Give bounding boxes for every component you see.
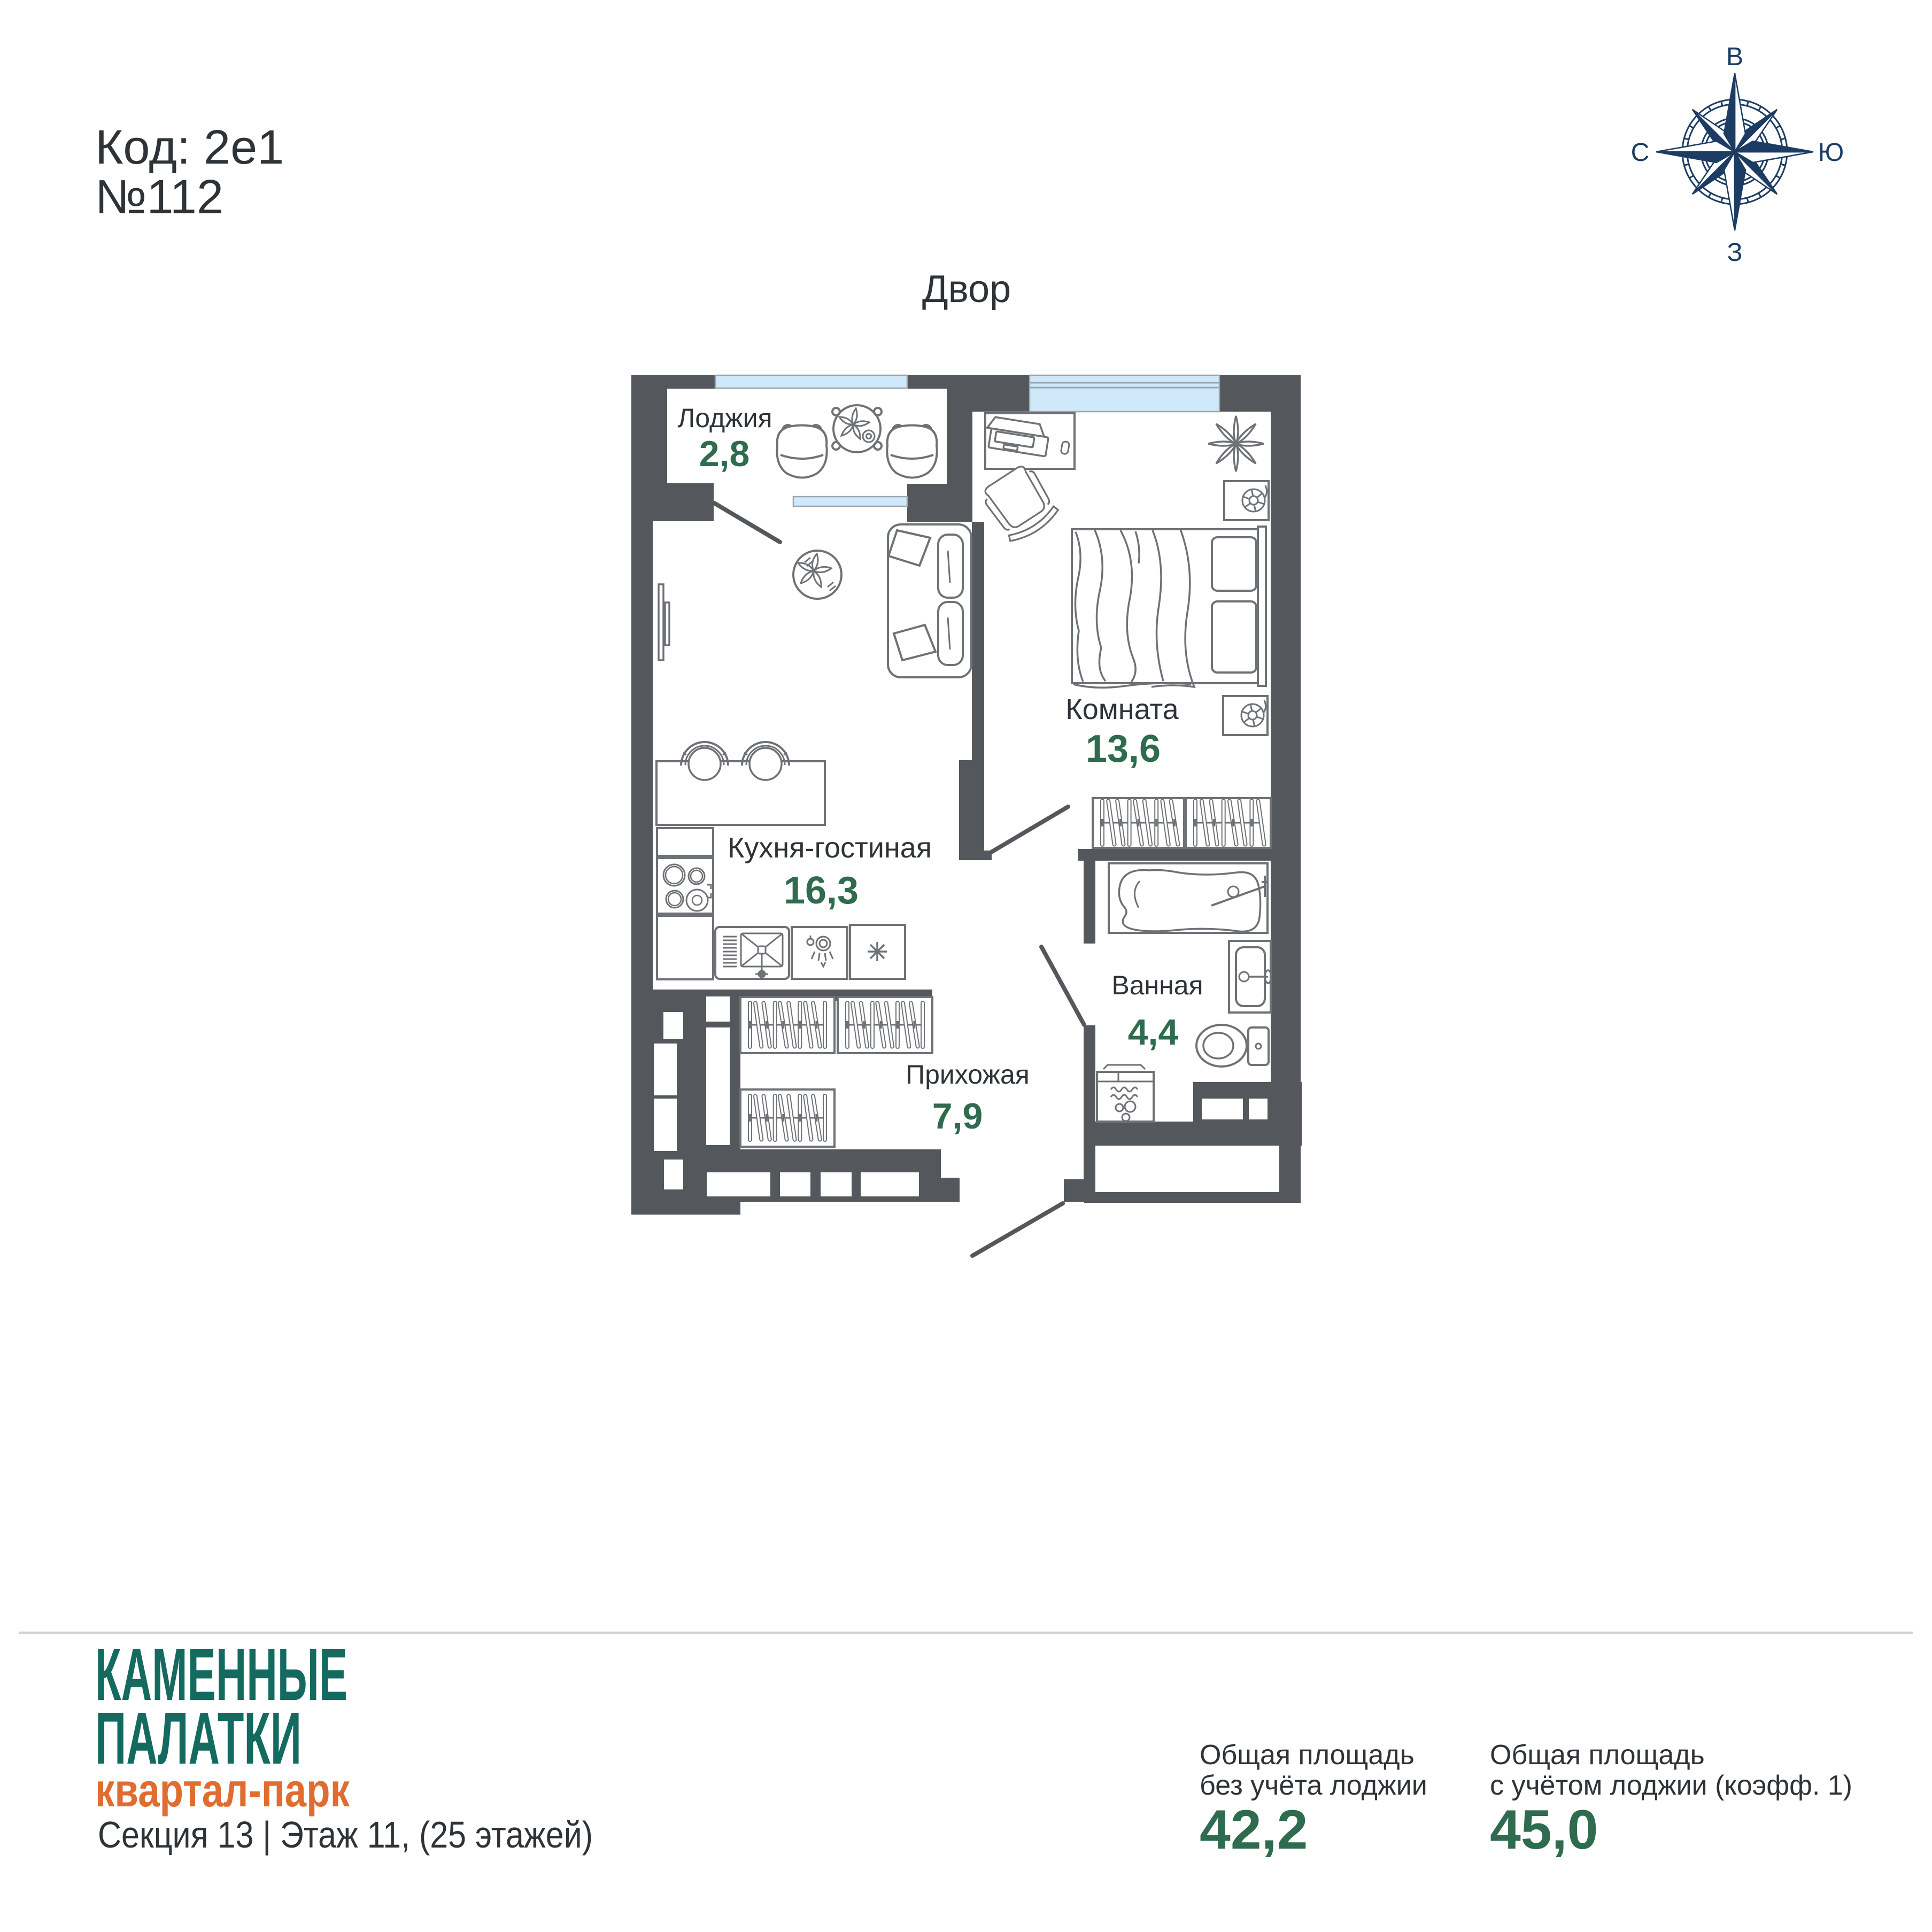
svg-text:Общая площадь: Общая площадь: [1200, 1740, 1415, 1771]
svg-text:З: З: [1727, 238, 1743, 267]
svg-text:Секция 13 | Этаж 11, (25 этаже: Секция 13 | Этаж 11, (25 этажей): [98, 1814, 593, 1856]
svg-text:В: В: [1726, 43, 1743, 71]
svg-text:квартал-парк: квартал-парк: [95, 1764, 350, 1817]
svg-text:45,0: 45,0: [1490, 1799, 1598, 1861]
svg-text:Прихожая: Прихожая: [906, 1060, 1030, 1089]
svg-text:4,4: 4,4: [1128, 1012, 1179, 1053]
svg-text:Ю: Ю: [1818, 138, 1844, 167]
svg-text:Лоджия: Лоджия: [677, 403, 772, 433]
svg-text:42,2: 42,2: [1200, 1799, 1308, 1861]
svg-text:2,8: 2,8: [699, 434, 750, 474]
svg-text:Комната: Комната: [1065, 693, 1179, 725]
svg-text:№112: №112: [95, 171, 223, 224]
svg-text:13,6: 13,6: [1086, 728, 1161, 770]
svg-text:Двор: Двор: [922, 268, 1011, 311]
svg-text:Кухня-гостиная: Кухня-гостиная: [728, 832, 932, 864]
svg-text:7,9: 7,9: [932, 1096, 983, 1137]
svg-text:Общая площадь: Общая площадь: [1490, 1740, 1705, 1771]
svg-text:с учётом лоджии (коэфф. 1): с учётом лоджии (коэфф. 1): [1490, 1770, 1852, 1801]
svg-text:без учёта лоджии: без учёта лоджии: [1200, 1770, 1427, 1801]
svg-text:С: С: [1631, 138, 1650, 167]
svg-text:Ванная: Ванная: [1111, 970, 1203, 1000]
svg-text:Код: 2е1: Код: 2е1: [95, 121, 284, 174]
svg-text:16,3: 16,3: [784, 869, 859, 912]
